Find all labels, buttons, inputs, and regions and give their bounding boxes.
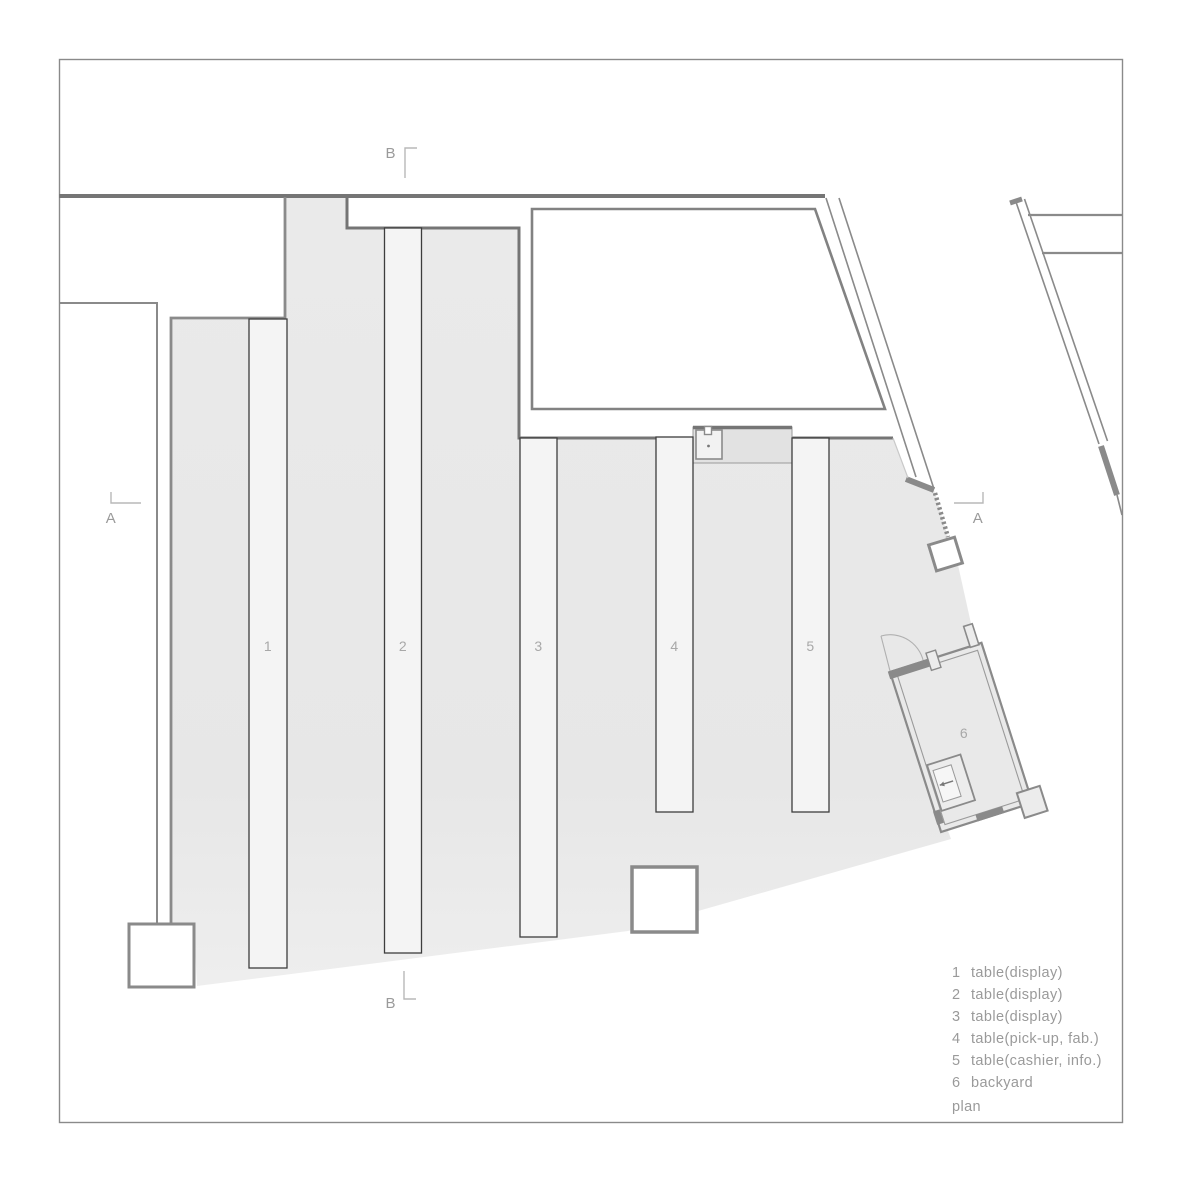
legend-item-2-num: 2 (952, 987, 960, 1003)
right-diagonal-outer (1025, 199, 1108, 441)
section-a-right-letter: A (973, 510, 984, 527)
section-b-bottom-mark (404, 971, 416, 999)
table-4-number: 4 (670, 638, 678, 654)
upper-room (532, 209, 885, 409)
right-neighbor-walls (1010, 199, 1122, 515)
legend-item-6-label: backyard (971, 1075, 1033, 1091)
section-a-left-letter: A (106, 510, 117, 527)
right-diagonal-tip (1117, 495, 1122, 515)
legend-item-6-num: 6 (952, 1075, 960, 1091)
table-5-number: 5 (806, 638, 814, 654)
section-b-top-mark (405, 148, 417, 178)
legend-item-4-num: 4 (952, 1031, 960, 1047)
backyard-number: 6 (960, 725, 968, 741)
left-neighbor-wall (59, 303, 157, 923)
legend-plan-label: plan (952, 1099, 981, 1115)
section-b-top-letter: B (385, 145, 396, 162)
right-diagonal-pier (1101, 446, 1117, 495)
legend-item-3-label: table(display) (971, 1009, 1063, 1025)
legend-item-3-num: 3 (952, 1009, 960, 1025)
legend-item-5-label: table(cashier, info.) (971, 1053, 1102, 1069)
faucet-icon (705, 427, 712, 435)
table-5 (792, 438, 829, 812)
legend-item-1-num: 1 (952, 965, 960, 981)
floor-plan-page: 1 2 3 4 5 6 B (0, 0, 1181, 1181)
legend-item-4-label: table(pick-up, fab.) (971, 1031, 1099, 1047)
section-a-left-mark (111, 492, 141, 503)
bottom-middle-pier (632, 867, 697, 932)
drain-icon (707, 445, 710, 448)
table-1-number: 1 (264, 638, 272, 654)
right-diagonal-inner (1016, 202, 1099, 444)
table-2-number: 2 (399, 638, 407, 654)
counter-unit (693, 427, 792, 464)
table-3-number: 3 (534, 638, 542, 654)
legend: 1 table(display) 2 table(display) 3 tabl… (952, 965, 1102, 1115)
backyard-corner-foot (1017, 786, 1048, 818)
legend-item-1-label: table(display) (971, 965, 1063, 981)
table-4 (656, 437, 693, 812)
section-b-bottom-letter: B (385, 995, 396, 1012)
bottom-left-pier (129, 924, 194, 987)
legend-item-2-label: table(display) (971, 987, 1063, 1003)
section-a-right-mark (954, 492, 983, 503)
table-3 (520, 438, 557, 937)
entrance-pillar (929, 537, 963, 571)
floor-plan-drawing: 1 2 3 4 5 6 B (0, 0, 1181, 1181)
legend-item-5-num: 5 (952, 1053, 960, 1069)
table-2 (385, 228, 422, 953)
